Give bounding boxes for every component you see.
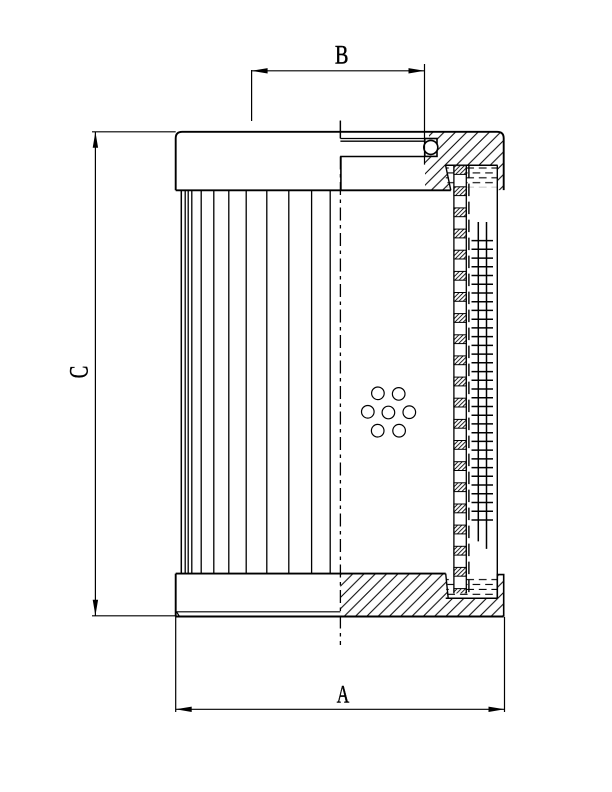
- svg-text:C: C: [64, 366, 94, 379]
- svg-text:A: A: [337, 680, 350, 709]
- svg-text:B: B: [335, 40, 349, 70]
